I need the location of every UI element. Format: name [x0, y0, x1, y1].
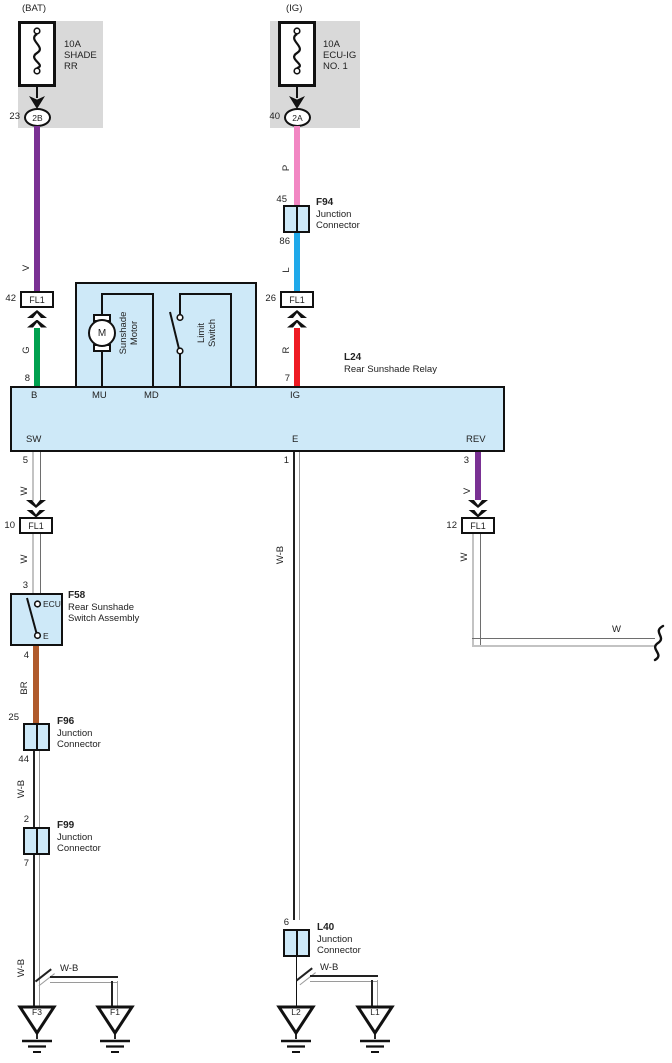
- wire-wb-e: [293, 452, 300, 920]
- sunshade-motor-label: Sunshade Motor: [106, 308, 152, 358]
- f58-terminal-e: E: [43, 631, 49, 642]
- f96-label: F96 Junction Connector: [57, 716, 101, 751]
- ground-l1-label: L1: [355, 1007, 395, 1017]
- wire-w-rev-horizontal-label: W: [612, 624, 621, 635]
- fl1-connector-10: FL1: [19, 517, 53, 534]
- f94-id: F94: [316, 197, 360, 209]
- ground-f3-label: F3: [17, 1007, 57, 1017]
- f96-id: F96: [57, 716, 101, 728]
- l40-id: L40: [317, 922, 361, 934]
- l40-label: L40 Junction Connector: [317, 922, 361, 957]
- f99-id: F99: [57, 820, 101, 832]
- wire-r-label: R: [276, 339, 296, 361]
- fl1-connector-42: FL1: [20, 291, 54, 308]
- pin-3-sw: 3: [12, 580, 28, 591]
- f99-line1: Junction: [57, 832, 101, 844]
- motor-circuit-rail: [101, 293, 154, 295]
- f96-line1: Junction: [57, 728, 101, 740]
- ig-fuse-lead: [296, 85, 298, 98]
- chevron-up-icon-42: [27, 310, 47, 328]
- l40-line2: Connector: [317, 945, 361, 957]
- bat-header: (BAT): [22, 3, 46, 14]
- relay-pin-mu: MU: [92, 390, 107, 401]
- wire-wb-e-branch-label: W-B: [320, 962, 338, 973]
- relay-pin-b: B: [31, 390, 37, 401]
- relay-pin-rev: REV: [466, 434, 486, 445]
- f99-line2: Connector: [57, 843, 101, 855]
- junction-connector-l40: [283, 929, 310, 957]
- junction-connector-f96: [23, 723, 50, 751]
- wire-wb-branch-horizontal: [50, 976, 118, 983]
- pin-4: 4: [13, 650, 29, 661]
- wire-wb-f96-f99-label: W-B: [11, 778, 31, 800]
- wire-w-sw-upper-label: W: [14, 480, 34, 502]
- pin-2: 2: [13, 814, 29, 825]
- ground-f1-label: F1: [95, 1007, 135, 1017]
- f94-line1: Junction: [316, 209, 360, 221]
- f58-name2: Switch Assembly: [68, 613, 139, 625]
- wire-wb-ground-label: W-B: [11, 957, 31, 979]
- ig-fuse-symbol: [278, 21, 316, 87]
- wire-continuation-squiggle-icon: [649, 625, 669, 661]
- ig-fuse-name-2: NO. 1: [323, 61, 348, 72]
- wire-wb-branch-down: [111, 981, 118, 1008]
- f94-label: F94 Junction Connector: [316, 197, 360, 232]
- wire-g-label: G: [16, 339, 36, 361]
- pin-26: 26: [260, 293, 276, 304]
- wire-br-label: BR: [14, 677, 34, 699]
- relay-pin-md: MD: [144, 390, 159, 401]
- l40-line1: Junction: [317, 934, 361, 946]
- relay-box: [10, 386, 505, 452]
- limit-switch-label: Limit Switch: [185, 309, 229, 357]
- f94-line2: Connector: [316, 220, 360, 232]
- bat-fuse-rating: 10A: [64, 39, 81, 50]
- f96-line2: Connector: [57, 739, 101, 751]
- pin-8: 8: [14, 373, 30, 384]
- bat-fuse-symbol: [18, 21, 56, 87]
- wire-v-bat-label: V: [16, 257, 36, 279]
- bat-fuse-lead: [36, 85, 38, 98]
- ground-l2-label: L2: [276, 1007, 316, 1017]
- pin-1: 1: [273, 455, 289, 466]
- wire-p-label: P: [276, 157, 296, 179]
- wire-wb-e-branch-horizontal: [310, 975, 378, 982]
- pin-6: 6: [273, 917, 289, 928]
- ig-pin-number: 40: [264, 111, 280, 122]
- wire-wb-e-label: W-B: [270, 544, 290, 566]
- relay-label: L24 Rear Sunshade Relay: [344, 352, 437, 375]
- f99-label: F99 Junction Connector: [57, 820, 101, 855]
- pin-25: 25: [3, 712, 19, 723]
- chevron-up-icon-26: [287, 310, 307, 328]
- f58-terminal-ecu: ECU: [43, 599, 61, 610]
- wire-wb-e-branch-down: [371, 980, 378, 1008]
- pin-44: 44: [13, 754, 29, 765]
- relay-pin-ig: IG: [290, 390, 300, 401]
- wire-w-rev-label: W: [454, 546, 474, 568]
- bat-fuse-name-2: RR: [64, 61, 78, 72]
- motor-circuit-return: [152, 293, 154, 388]
- ig-fuse-name-1: ECU-IG: [323, 50, 356, 61]
- pin-12: 12: [441, 520, 457, 531]
- pin-5: 5: [12, 455, 28, 466]
- junction-connector-f94: [283, 205, 310, 233]
- chevron-down-icon-12: [468, 500, 488, 518]
- wiring-diagram-canvas: (BAT) 10A SHADE RR 23 2B V 42 FL1 G 8 (I…: [0, 0, 672, 1063]
- relay-name: Rear Sunshade Relay: [344, 364, 437, 376]
- wire-wb-f96-f99: [33, 751, 40, 827]
- bat-connector-oval: 2B: [24, 108, 51, 127]
- fl1-connector-26: FL1: [280, 291, 314, 308]
- ig-header: (IG): [286, 3, 302, 14]
- junction-connector-f99: [23, 827, 50, 855]
- limit-switch-rail: [179, 293, 230, 295]
- bat-fuse-name-1: SHADE: [64, 50, 97, 61]
- ig-connector-oval: 2A: [284, 108, 311, 127]
- wire-v-rev-label: V: [457, 480, 477, 502]
- relay-pin-e: E: [292, 434, 298, 445]
- pin-42: 42: [0, 293, 16, 304]
- f58-name1: Rear Sunshade: [68, 602, 139, 614]
- pin-10: 10: [0, 520, 15, 531]
- pin-86: 86: [274, 236, 290, 247]
- wire-l-label: L: [276, 259, 296, 281]
- pin-3-rev: 3: [453, 455, 469, 466]
- wire-wb-branch-label: W-B: [60, 963, 78, 974]
- wire-w-sw-lower-label: W: [14, 548, 34, 570]
- relay-pin-sw: SW: [26, 434, 41, 445]
- fl1-connector-12: FL1: [461, 517, 495, 534]
- limit-switch-return: [230, 293, 232, 388]
- pin-45: 45: [271, 194, 287, 205]
- f58-id: F58: [68, 590, 139, 602]
- relay-id: L24: [344, 352, 437, 364]
- pin-7-f99: 7: [13, 858, 29, 869]
- wire-w-rev-horizontal: [472, 638, 655, 647]
- pin-7-ig: 7: [274, 373, 290, 384]
- f58-label: F58 Rear Sunshade Switch Assembly: [68, 590, 139, 625]
- ig-fuse-rating: 10A: [323, 39, 340, 50]
- motor-lead-bottom: [101, 350, 103, 388]
- bat-pin-number: 23: [4, 111, 20, 122]
- chevron-down-icon-10: [26, 500, 46, 518]
